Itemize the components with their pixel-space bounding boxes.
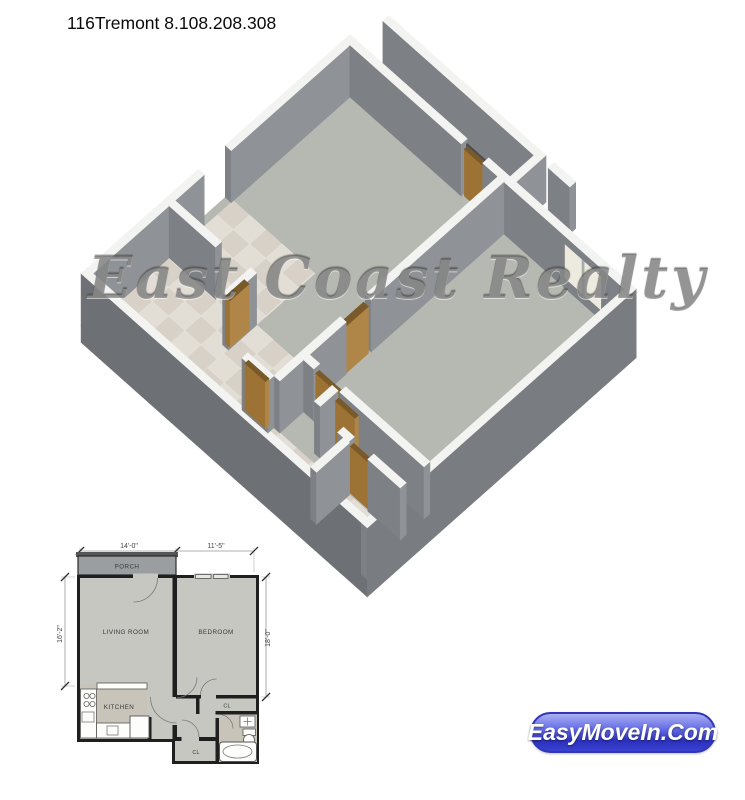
easymovein-badge-label: EasyMoveIn.Com	[528, 719, 718, 746]
room-label-porch: PORCH	[115, 564, 140, 571]
room-label-closet-bedroom: CL	[223, 704, 230, 710]
room-label-closet-hall: CL	[192, 750, 199, 756]
watermark-text: East Coast Realty	[88, 244, 668, 312]
floorplan-sheet: 14'-0" 11'-5" 16'-2" 18'-0" PORCH LIVING…	[0, 0, 745, 800]
dimension-label-top-left: 14'-0"	[120, 543, 138, 550]
room-label-living: LIVING ROOM	[103, 629, 149, 636]
bathroom-fixtures-2d	[219, 715, 257, 763]
kitchen-fixtures-2d	[81, 683, 150, 739]
page-title: 116Tremont 8.108.208.308	[67, 13, 276, 34]
floorplan-2d: 14'-0" 11'-5" 16'-2" 18'-0" PORCH LIVING…	[0, 0, 745, 800]
room-label-bedroom: BEDROOM	[198, 629, 233, 636]
dimension-label-top-right: 11'-5"	[207, 543, 225, 550]
dimension-label-left: 16'-2"	[57, 625, 64, 643]
room-label-kitchen: KITCHEN	[104, 704, 134, 711]
dimension-label-right: 18'-0"	[265, 629, 272, 647]
easymovein-badge[interactable]: EasyMoveIn.Com	[530, 712, 716, 753]
